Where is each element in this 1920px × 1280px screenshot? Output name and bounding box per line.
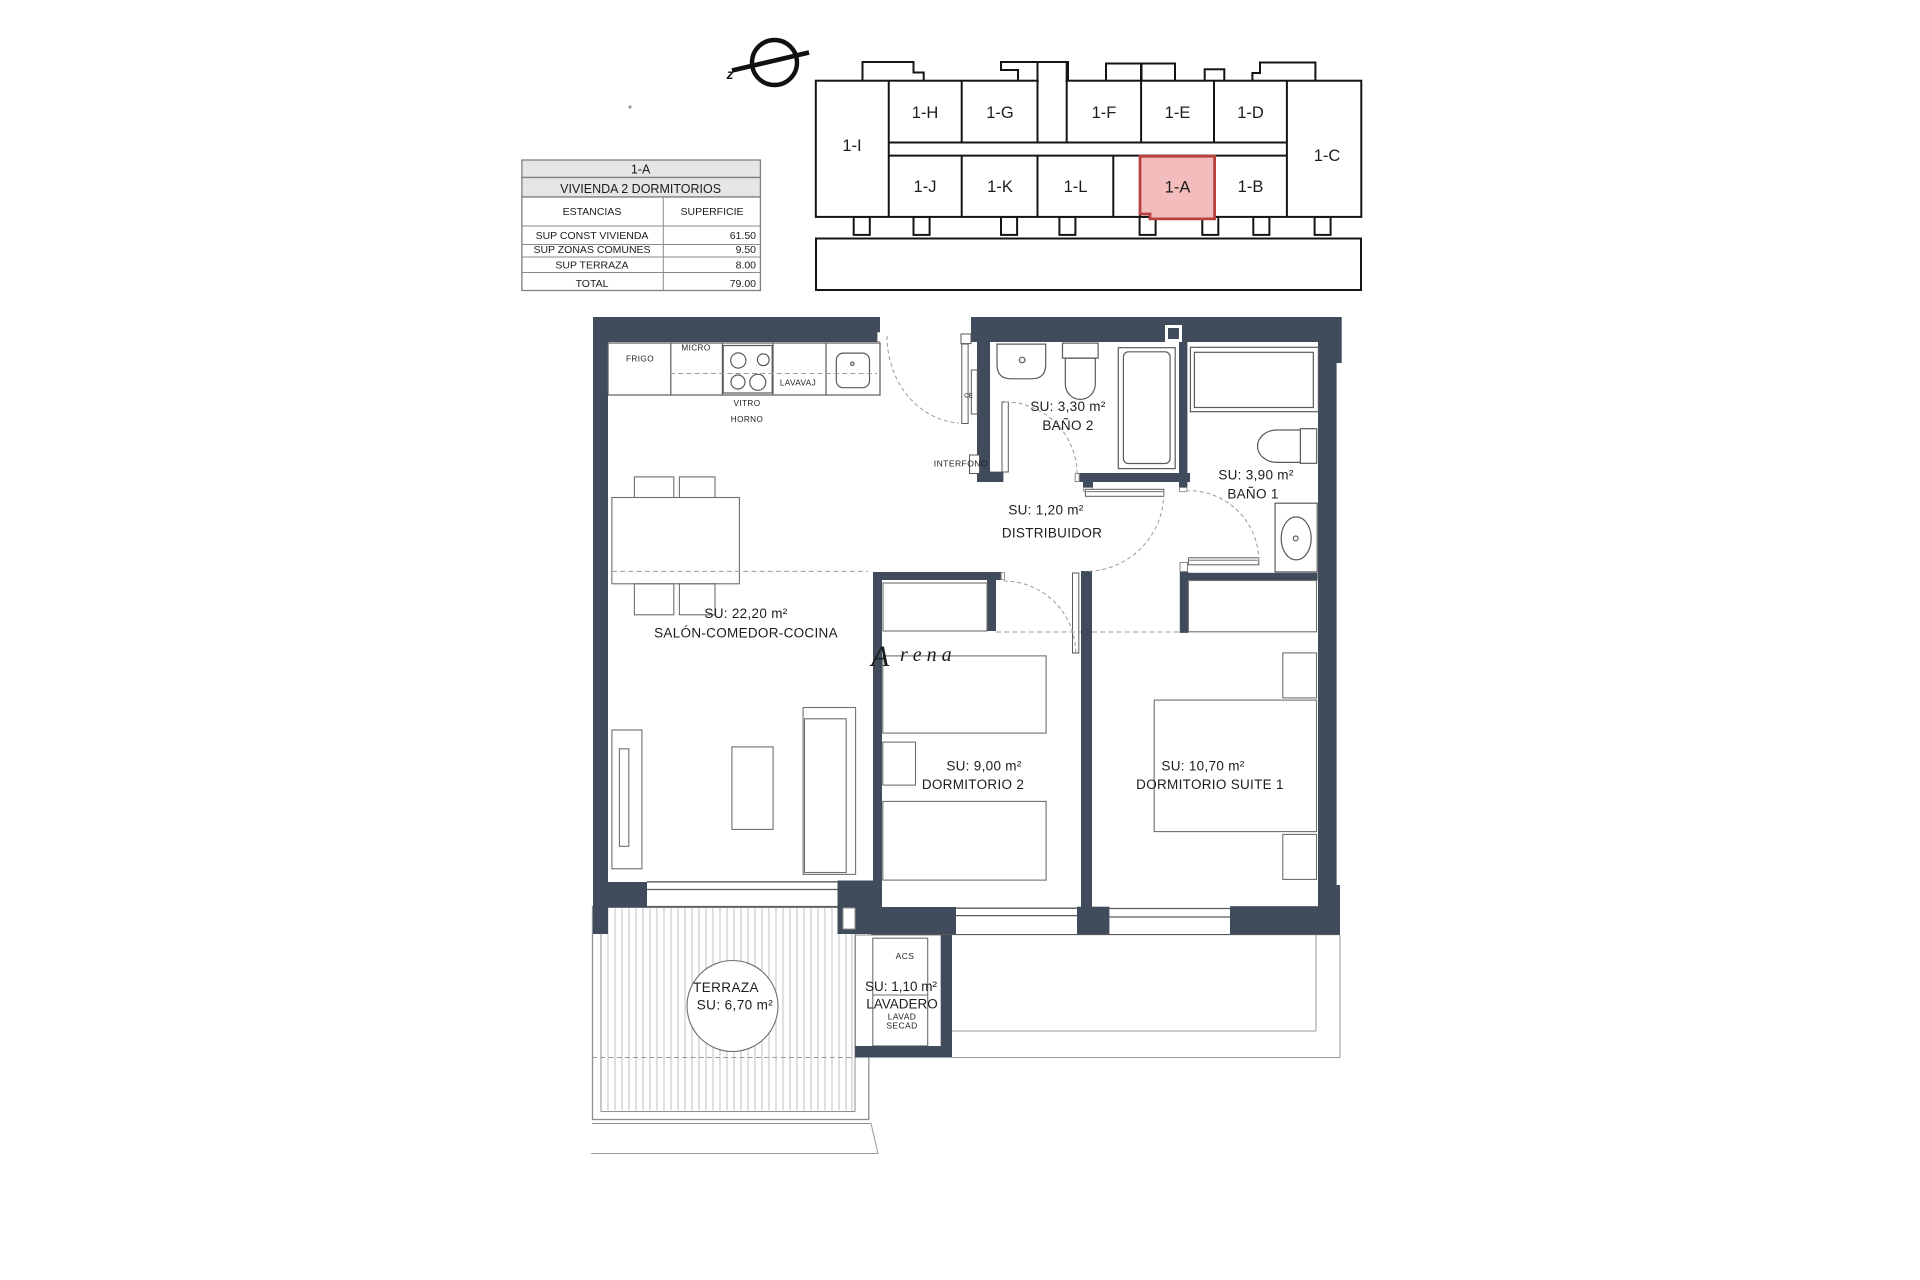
svg-text:LAVADERO: LAVADERO — [866, 997, 938, 1012]
svg-text:SU: 1,10 m²: SU: 1,10 m² — [865, 979, 938, 994]
svg-text:1-H: 1-H — [912, 104, 939, 122]
svg-text:TERRAZA: TERRAZA — [693, 980, 759, 995]
svg-text:1-A: 1-A — [1165, 179, 1191, 197]
svg-text:1-J: 1-J — [914, 178, 937, 196]
svg-text:8.00: 8.00 — [736, 260, 757, 272]
svg-text:1-L: 1-L — [1064, 178, 1088, 196]
svg-text:INTERFONO: INTERFONO — [934, 459, 988, 469]
svg-text:9.50: 9.50 — [736, 244, 757, 256]
svg-text:SU: 9,00 m²: SU: 9,00 m² — [946, 759, 1022, 774]
svg-text:SU: 22,20 m²: SU: 22,20 m² — [704, 606, 787, 621]
svg-text:1-D: 1-D — [1237, 104, 1264, 122]
svg-text:z: z — [726, 66, 734, 82]
svg-text:A: A — [869, 640, 890, 673]
svg-text:DISTRIBUIDOR: DISTRIBUIDOR — [1002, 526, 1102, 541]
svg-text:BAÑO 2: BAÑO 2 — [1042, 418, 1093, 433]
svg-text:TOTAL: TOTAL — [576, 278, 609, 290]
svg-text:SU: 6,70 m²: SU: 6,70 m² — [697, 998, 774, 1013]
svg-text:r e n a: r e n a — [900, 644, 952, 666]
svg-text:ACS: ACS — [896, 951, 915, 961]
svg-text:SUPERFICIE: SUPERFICIE — [680, 206, 743, 218]
svg-text:FRIGO: FRIGO — [626, 355, 654, 364]
svg-text:1-K: 1-K — [987, 178, 1013, 196]
svg-text:VIVIENDA 2 DORMITORIOS: VIVIENDA 2 DORMITORIOS — [560, 182, 721, 196]
svg-text:SUP ZONAS COMUNES: SUP ZONAS COMUNES — [533, 244, 650, 256]
svg-text:1-C: 1-C — [1314, 147, 1341, 165]
svg-text:1-G: 1-G — [986, 104, 1014, 122]
svg-text:BAÑO 1: BAÑO 1 — [1227, 487, 1278, 502]
svg-text:61.50: 61.50 — [730, 230, 756, 242]
svg-text:SU: 3,30 m²: SU: 3,30 m² — [1030, 399, 1106, 414]
svg-text:SU: 1,20 m²: SU: 1,20 m² — [1008, 503, 1084, 518]
svg-text:HORNO: HORNO — [731, 415, 763, 424]
svg-text:1-F: 1-F — [1092, 104, 1117, 122]
svg-text:SU: 3,90 m²: SU: 3,90 m² — [1218, 468, 1294, 483]
svg-text:79.00: 79.00 — [730, 278, 756, 290]
svg-text:DORMITORIO 2: DORMITORIO 2 — [922, 777, 1024, 792]
svg-text:DORMITORIO SUITE 1: DORMITORIO SUITE 1 — [1136, 777, 1284, 792]
svg-text:1-I: 1-I — [842, 137, 861, 155]
svg-text:SALÓN-COMEDOR-COCINA: SALÓN-COMEDOR-COCINA — [654, 626, 838, 641]
svg-text:MICRO: MICRO — [681, 344, 710, 353]
svg-text:1-A: 1-A — [631, 163, 651, 177]
svg-text:SECAD: SECAD — [886, 1021, 917, 1031]
svg-text:SUP CONST VIVIENDA: SUP CONST VIVIENDA — [536, 230, 649, 242]
svg-text:CE: CE — [964, 393, 973, 400]
svg-text:1-B: 1-B — [1238, 178, 1264, 196]
svg-text:1-E: 1-E — [1165, 104, 1191, 122]
svg-text:LAVAVAJ: LAVAVAJ — [780, 379, 816, 388]
svg-text:SUP TERRAZA: SUP TERRAZA — [555, 260, 628, 272]
svg-text:ESTANCIAS: ESTANCIAS — [563, 206, 622, 218]
svg-text:VITRO: VITRO — [733, 399, 760, 408]
svg-text:SU: 10,70 m²: SU: 10,70 m² — [1161, 759, 1244, 774]
